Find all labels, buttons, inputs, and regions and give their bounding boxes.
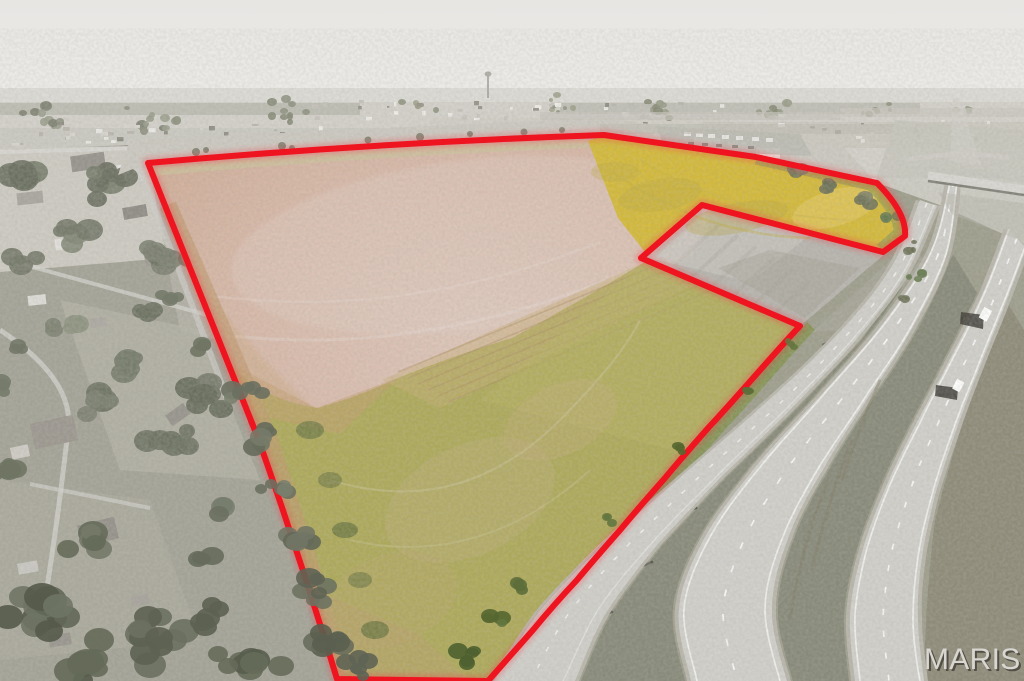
svg-text:MARIS: MARIS (924, 643, 1021, 676)
